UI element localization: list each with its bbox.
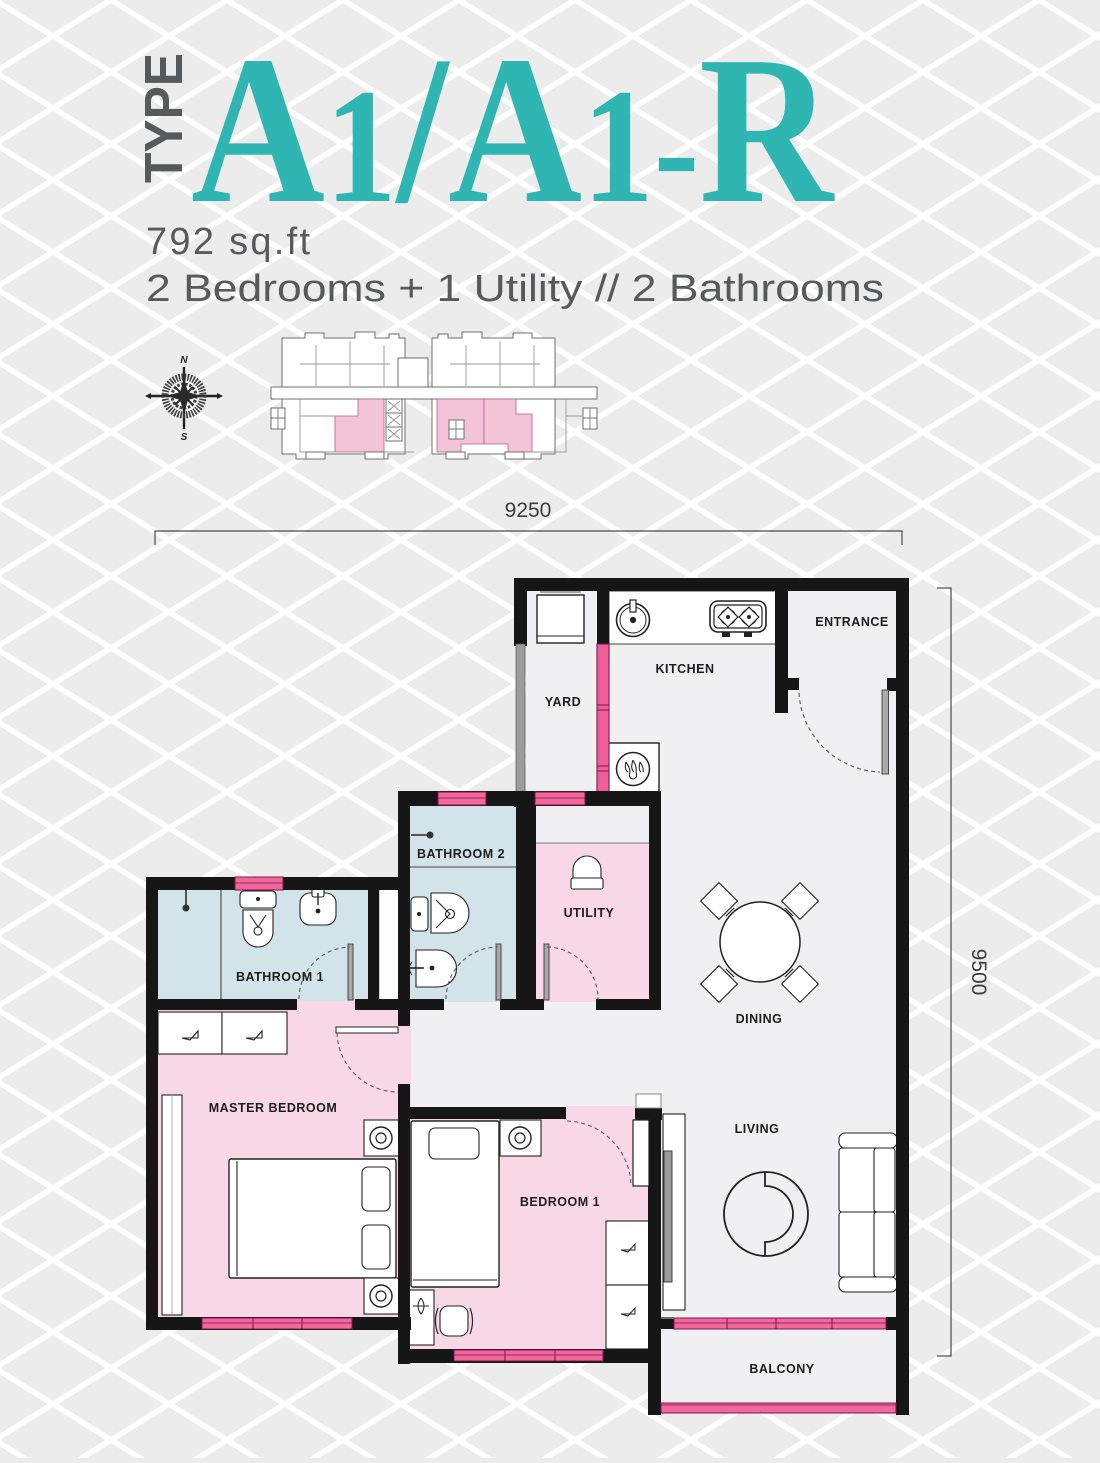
svg-text:YARD: YARD (545, 695, 581, 709)
svg-text:A1/A1-R: A1/A1-R (191, 12, 835, 247)
svg-text:KITCHEN: KITCHEN (655, 662, 714, 676)
svg-text:N: N (180, 355, 188, 366)
svg-text:LIVING: LIVING (735, 1122, 780, 1136)
svg-text:9500: 9500 (967, 949, 990, 996)
svg-text:BALCONY: BALCONY (749, 1362, 814, 1376)
svg-text:BATHROOM 1: BATHROOM 1 (236, 970, 324, 984)
svg-text:S: S (181, 432, 188, 443)
svg-text:ENTRANCE: ENTRANCE (815, 615, 888, 629)
svg-text:792 sq.ft: 792 sq.ft (146, 221, 310, 263)
svg-text:DINING: DINING (736, 1012, 783, 1026)
svg-text:2 Bedrooms + 1 Utility // 2 Ba: 2 Bedrooms + 1 Utility // 2 Bathrooms (146, 268, 884, 310)
svg-text:9250: 9250 (505, 499, 552, 522)
svg-text:MASTER BEDROOM: MASTER BEDROOM (209, 1101, 338, 1115)
svg-text:UTILITY: UTILITY (564, 906, 615, 920)
svg-text:BATHROOM 2: BATHROOM 2 (417, 847, 505, 861)
svg-text:BEDROOM 1: BEDROOM 1 (520, 1195, 600, 1209)
svg-text:TYPE: TYPE (134, 53, 194, 183)
